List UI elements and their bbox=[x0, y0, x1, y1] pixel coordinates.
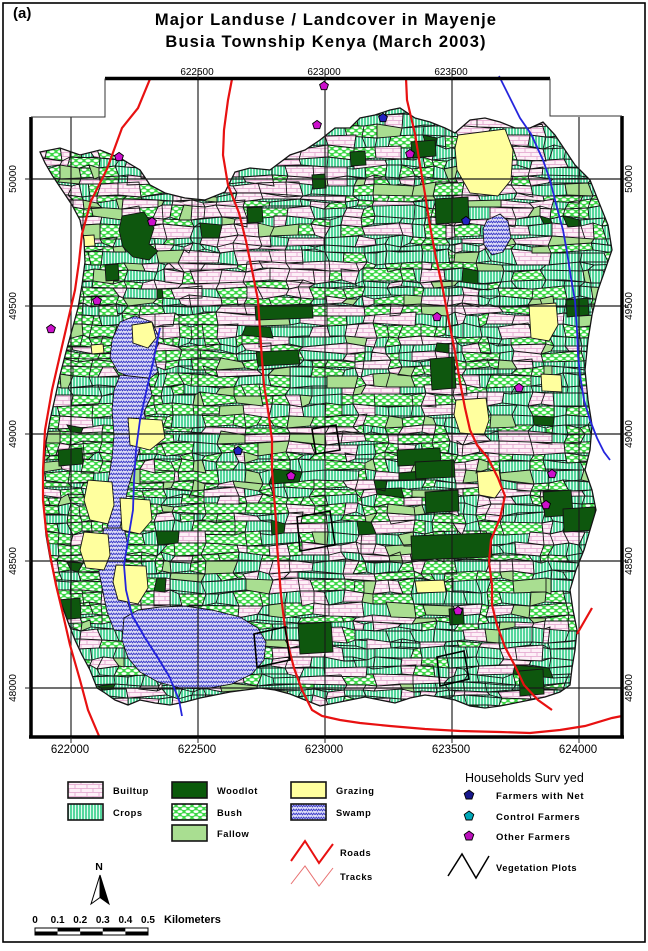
svg-text:50000: 50000 bbox=[8, 165, 19, 193]
svg-text:0.2: 0.2 bbox=[73, 915, 87, 926]
svg-text:48500: 48500 bbox=[8, 547, 19, 575]
svg-text:Builtup: Builtup bbox=[113, 786, 149, 796]
svg-text:623000: 623000 bbox=[305, 744, 343, 756]
svg-text:0.1: 0.1 bbox=[51, 915, 65, 926]
svg-text:Households Surv yed: Households Surv yed bbox=[465, 771, 584, 785]
svg-text:Bush: Bush bbox=[217, 808, 242, 818]
svg-text:49000: 49000 bbox=[624, 420, 635, 448]
svg-text:622000: 622000 bbox=[51, 744, 89, 756]
svg-text:N: N bbox=[95, 861, 103, 873]
svg-text:49500: 49500 bbox=[624, 292, 635, 320]
svg-text:Major Landuse / Landcover in M: Major Landuse / Landcover in Mayenje bbox=[155, 11, 497, 29]
svg-text:48500: 48500 bbox=[624, 547, 635, 575]
svg-text:622500: 622500 bbox=[180, 67, 214, 78]
svg-text:Grazing: Grazing bbox=[336, 786, 374, 796]
svg-text:Roads: Roads bbox=[340, 848, 371, 858]
svg-text:Other Farmers: Other Farmers bbox=[496, 832, 571, 843]
svg-text:623500: 623500 bbox=[434, 67, 468, 78]
svg-text:623000: 623000 bbox=[307, 67, 341, 78]
svg-text:49500: 49500 bbox=[8, 292, 19, 320]
svg-text:623500: 623500 bbox=[432, 744, 470, 756]
svg-text:Swamp: Swamp bbox=[336, 808, 371, 818]
svg-text:Kilometers: Kilometers bbox=[164, 914, 221, 926]
svg-text:48000: 48000 bbox=[8, 674, 19, 702]
svg-text:Fallow: Fallow bbox=[217, 829, 249, 839]
svg-text:Crops: Crops bbox=[113, 808, 143, 818]
svg-text:(a): (a) bbox=[13, 5, 31, 22]
svg-text:0.3: 0.3 bbox=[96, 915, 110, 926]
svg-text:Woodlot: Woodlot bbox=[217, 786, 258, 796]
svg-text:50000: 50000 bbox=[624, 165, 635, 193]
svg-text:49000: 49000 bbox=[8, 420, 19, 448]
svg-text:Vegetation Plots: Vegetation Plots bbox=[496, 863, 577, 873]
svg-text:Farmers with Net: Farmers with Net bbox=[496, 791, 584, 802]
svg-text:0: 0 bbox=[32, 915, 38, 926]
svg-text:Busia Township Kenya (March 20: Busia Township Kenya (March 2003) bbox=[165, 33, 486, 51]
svg-text:0.4: 0.4 bbox=[118, 915, 132, 926]
svg-text:622500: 622500 bbox=[178, 744, 216, 756]
svg-text:Tracks: Tracks bbox=[340, 872, 373, 882]
svg-text:0.5: 0.5 bbox=[141, 915, 155, 926]
svg-text:624000: 624000 bbox=[559, 744, 597, 756]
svg-text:Control Farmers: Control Farmers bbox=[496, 812, 580, 823]
svg-text:48000: 48000 bbox=[624, 674, 635, 702]
